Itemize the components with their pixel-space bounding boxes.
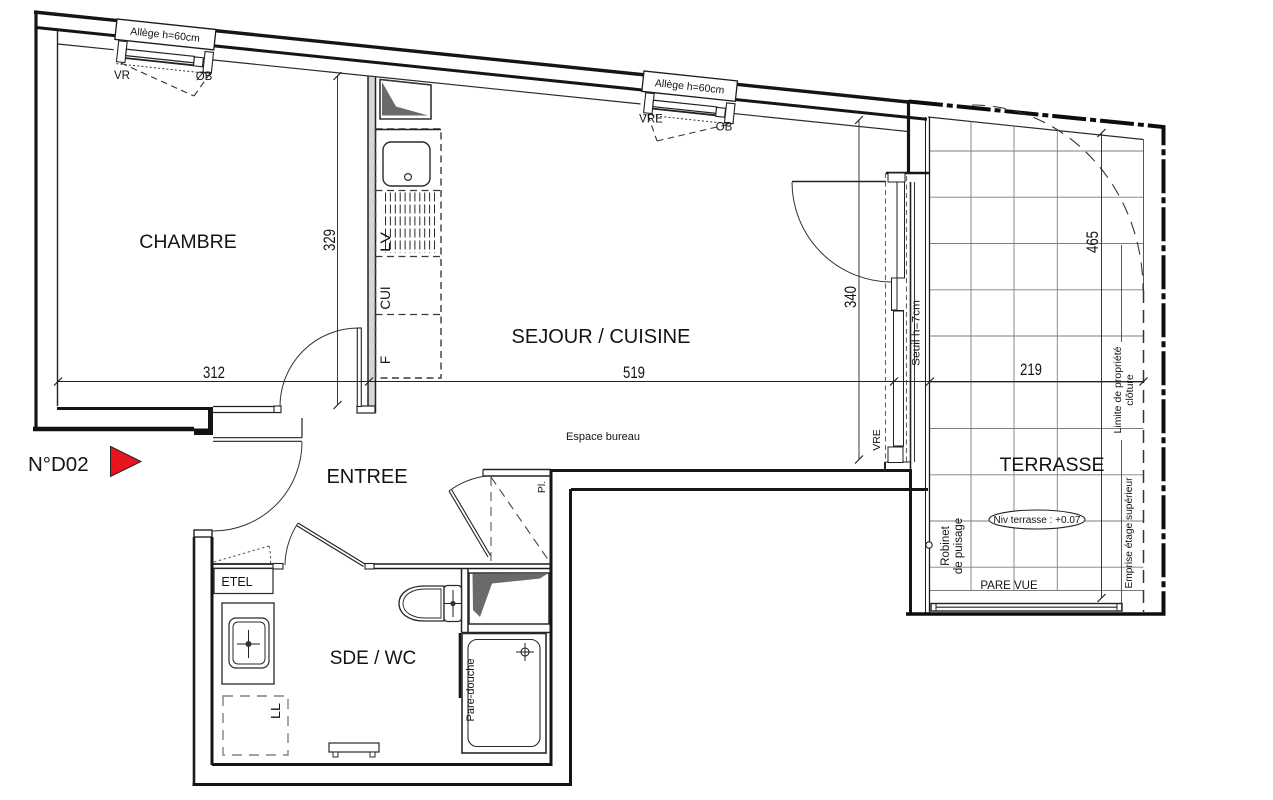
svg-text:N°D02: N°D02 <box>28 453 89 476</box>
svg-text:F: F <box>378 356 393 364</box>
svg-text:219: 219 <box>1020 361 1042 379</box>
svg-text:VRE: VRE <box>871 429 883 451</box>
svg-text:329: 329 <box>321 229 339 251</box>
svg-text:TERRASSE: TERRASSE <box>999 454 1104 476</box>
svg-text:ENTREE: ENTREE <box>326 466 407 488</box>
svg-text:OB: OB <box>716 122 733 134</box>
svg-text:ØB: ØB <box>196 71 213 83</box>
svg-text:LL: LL <box>268 703 283 719</box>
svg-text:Seuil h=7cm: Seuil h=7cm <box>911 300 923 366</box>
svg-text:SDE / WC: SDE / WC <box>330 648 417 669</box>
svg-text:CHAMBRE: CHAMBRE <box>139 231 237 253</box>
svg-text:Pare-douche: Pare-douche <box>465 659 477 722</box>
svg-text:de puisage: de puisage <box>953 518 965 574</box>
svg-text:clôture: clôture <box>1124 374 1136 406</box>
svg-text:Limite de propriété: Limite de propriété <box>1112 346 1124 433</box>
svg-text:312: 312 <box>203 364 225 382</box>
svg-text:340: 340 <box>842 286 860 308</box>
svg-text:Espace bureau: Espace bureau <box>566 431 640 443</box>
svg-text:Emprise étage supérieur: Emprise étage supérieur <box>1124 477 1135 589</box>
svg-text:519: 519 <box>623 364 645 382</box>
svg-text:VR: VR <box>114 70 130 82</box>
svg-text:CUI: CUI <box>378 286 393 309</box>
svg-text:ETEL: ETEL <box>221 575 252 589</box>
svg-text:PARE VUE: PARE VUE <box>980 580 1038 592</box>
svg-text:Niv terrasse : +0.07: Niv terrasse : +0.07 <box>994 515 1081 526</box>
svg-text:Pl.: Pl. <box>536 481 548 493</box>
svg-text:LV: LV <box>378 232 393 252</box>
svg-text:Robinet: Robinet <box>940 525 952 565</box>
svg-text:SEJOUR / CUISINE: SEJOUR / CUISINE <box>512 326 691 348</box>
svg-text:465: 465 <box>1084 231 1102 253</box>
svg-text:VRE: VRE <box>639 114 663 126</box>
